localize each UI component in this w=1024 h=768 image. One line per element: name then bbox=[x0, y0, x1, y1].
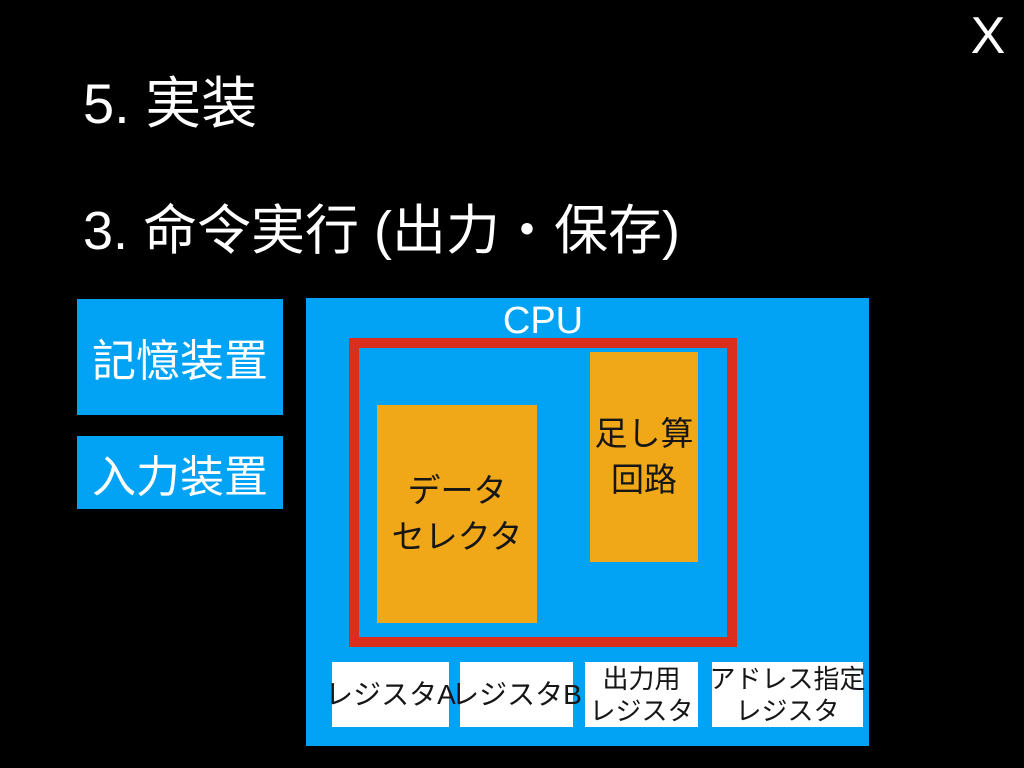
input-device-label: 入力装置 bbox=[92, 441, 268, 505]
data-selector-label-line2: セレクタ bbox=[392, 514, 523, 560]
close-button[interactable]: X bbox=[962, 8, 1014, 64]
data-selector-box: データ セレクタ bbox=[377, 405, 537, 623]
adder-circuit-label-line1: 足し算 bbox=[595, 411, 694, 457]
register-a-label: レジスタA bbox=[325, 680, 456, 710]
slide: X 5. 実装 3. 命令実行 (出力・保存) 記憶装置 入力装置 CPU デー… bbox=[0, 0, 1024, 768]
output-register-label-line1: 出力用 bbox=[602, 663, 680, 695]
adder-circuit-box: 足し算 回路 bbox=[590, 352, 698, 562]
register-a-box: レジスタA bbox=[332, 662, 449, 727]
memory-device-label: 記憶装置 bbox=[92, 325, 268, 389]
register-b-label: レジスタB bbox=[451, 680, 582, 710]
output-register-box: 出力用 レジスタ bbox=[585, 662, 698, 727]
page-title: 5. 実装 bbox=[83, 72, 257, 136]
slide-subtitle: 3. 命令実行 (出力・保存) bbox=[83, 200, 680, 262]
address-register-label-line1: アドレス指定 bbox=[710, 663, 866, 695]
output-register-label-line2: レジスタ bbox=[589, 695, 693, 727]
memory-device-box: 記憶装置 bbox=[77, 299, 283, 415]
input-device-box: 入力装置 bbox=[77, 436, 283, 509]
address-register-label-line2: レジスタ bbox=[735, 695, 839, 727]
adder-circuit-label-line2: 回路 bbox=[611, 457, 677, 503]
data-selector-label-line1: データ bbox=[408, 468, 507, 514]
address-register-box: アドレス指定 レジスタ bbox=[712, 662, 863, 727]
register-b-box: レジスタB bbox=[460, 662, 573, 727]
cpu-box: CPU データ セレクタ 足し算 回路 レジスタA レジスタB 出力用 レジスタ… bbox=[306, 298, 869, 746]
